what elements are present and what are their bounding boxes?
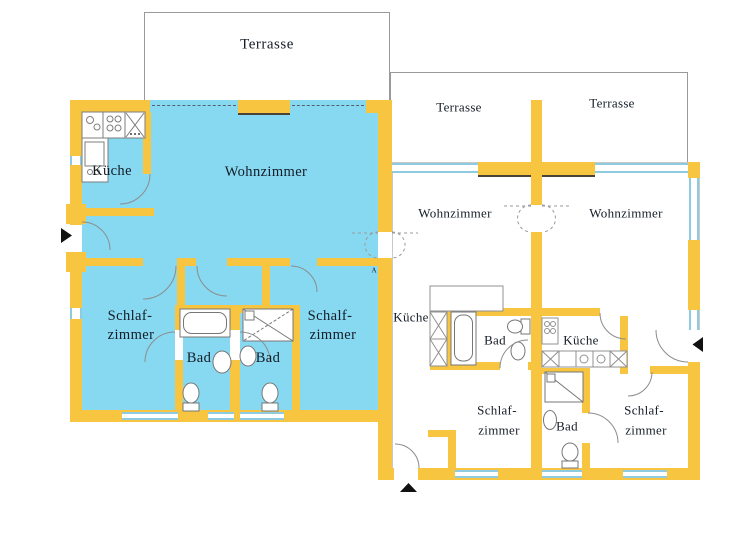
bedroom-unit-right-label-line2: zimmer <box>625 424 667 437</box>
south-entrance-arrow-icon <box>400 483 417 492</box>
washbasin <box>213 346 256 373</box>
west-entrance-arrow-icon <box>61 228 72 243</box>
terrace-unit-left-label: Terrasse <box>436 101 482 114</box>
terrace-left-label: Terrasse <box>240 38 294 53</box>
bathroom-right-label: Bad <box>256 351 281 366</box>
bedroom-right-label-line1: Schalf- <box>308 309 353 324</box>
bathroom-unit-right-label: Bad <box>556 420 578 433</box>
east-entrance-arrow-icon <box>693 337 704 352</box>
terrace-unit-right-label: Terrasse <box>589 97 635 110</box>
living-room-unit-right-label: Wohnzimmer <box>589 207 662 220</box>
living-room-unit-left-label: Wohnzimmer <box>418 207 491 220</box>
shower <box>545 372 583 402</box>
living-room-label: Wohnzimmer <box>225 165 308 180</box>
bedroom-left-label-line1: Schlaf- <box>108 309 153 324</box>
bedroom-unit-right-label-line1: Schlaf- <box>624 404 664 417</box>
bathtub <box>180 309 230 337</box>
section-marker: A <box>371 268 376 275</box>
kitchen-unit-right-label: Küche <box>563 334 598 347</box>
bedroom-right-label-line2: zimmer <box>310 328 357 343</box>
toilet <box>508 319 531 334</box>
toilet <box>562 443 578 468</box>
kitchen-unit-left-label: Küche <box>393 311 428 324</box>
toilet <box>183 383 278 411</box>
washbasin <box>544 411 557 430</box>
kitchen-label: Küche <box>92 164 132 179</box>
bedroom-unit-left-label-line1: Schlaf- <box>477 404 517 417</box>
bathroom-unit-left-label: Bad <box>484 334 506 347</box>
floor-plan: Terrasse Küche Wohnzimmer Schlaf- zimmer… <box>0 0 750 546</box>
bedroom-left-label-line2: zimmer <box>108 328 155 343</box>
bathtub <box>451 312 476 365</box>
shower <box>243 309 293 341</box>
bedroom-unit-left-label-line2: zimmer <box>478 424 520 437</box>
bathroom-left-label: Bad <box>187 351 212 366</box>
